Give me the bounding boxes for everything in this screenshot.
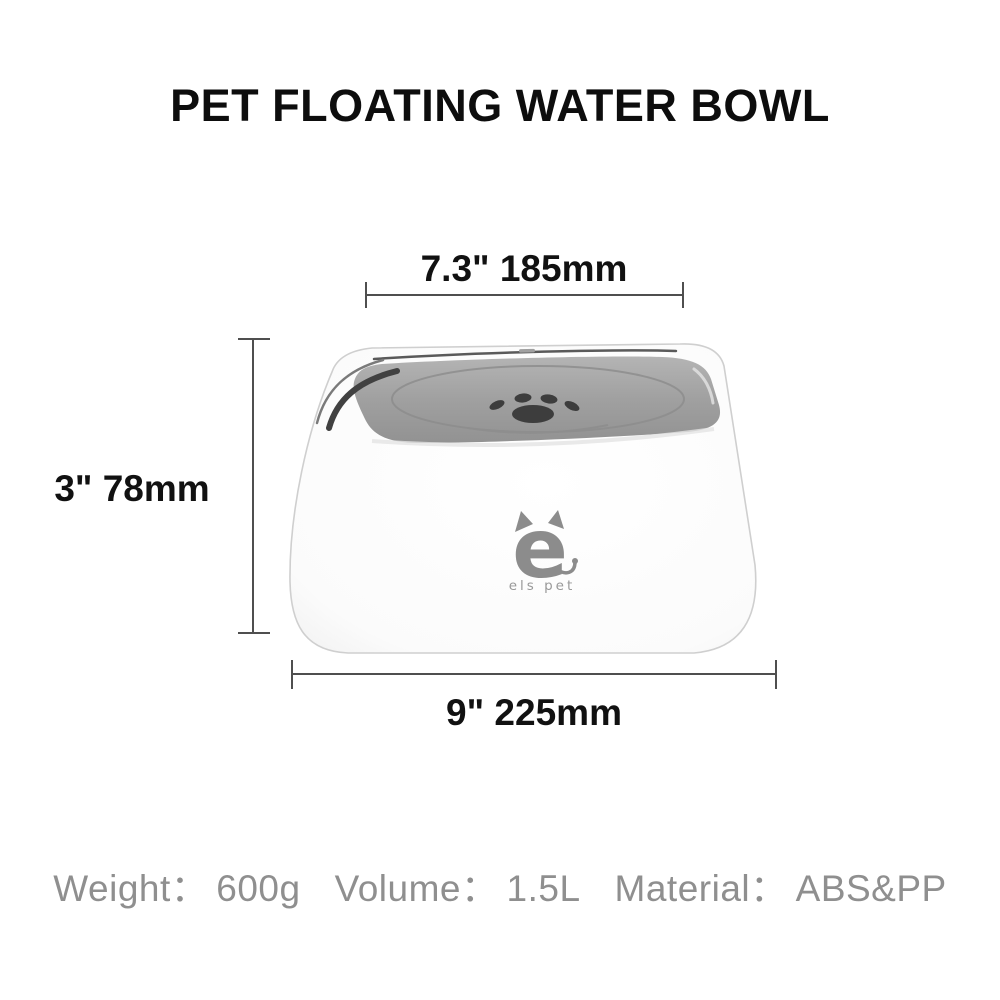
dimension-line-top	[366, 282, 683, 308]
spec-weight-label: Weight：	[53, 858, 208, 912]
rim-notch	[519, 349, 535, 353]
product-spec-page: PET FLOATING WATER BOWL 7.3" 185mm 3" 78…	[0, 0, 1000, 1000]
bowl-top-plate	[354, 356, 720, 443]
spec-volume-value: 1.5L	[507, 868, 581, 910]
spec-volume: Volume： 1.5L	[335, 858, 581, 912]
bowl-illustration: e els pet	[0, 0, 1000, 1000]
brand-logo: e els pet	[509, 502, 578, 597]
spec-material-value: ABS&PP	[796, 868, 947, 910]
product-specs: Weight： 600g Volume： 1.5L Material： ABS&…	[0, 858, 1000, 912]
spec-weight: Weight： 600g	[53, 858, 300, 912]
spec-material-label: Material：	[615, 858, 788, 912]
spec-volume-label: Volume：	[335, 858, 499, 912]
dimension-line-bottom	[292, 660, 776, 689]
spec-material: Material： ABS&PP	[615, 858, 947, 912]
brand-logo-name: els pet	[509, 578, 576, 594]
brand-logo-tail-dot	[572, 558, 578, 564]
spec-weight-value: 600g	[216, 868, 300, 910]
dimension-line-left	[238, 339, 270, 633]
